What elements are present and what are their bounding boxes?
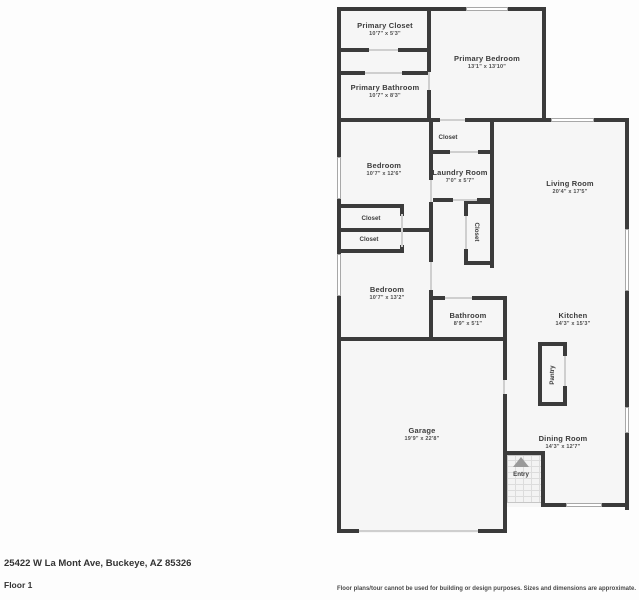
wall-garage-bottom-left [337,529,359,533]
wall-pantry-right-b [563,386,567,406]
wall-pantry-left [538,342,542,406]
wall-primary-closet-bottom-l [341,48,369,52]
label-entry: Entry [499,471,543,478]
wall-garage-top [337,337,507,341]
wall-left-garage [337,341,341,533]
door-pantry [564,356,566,386]
garage-car-door [359,530,478,532]
label-closet-top: Closet [426,134,470,141]
window-primary-bedroom-top [466,7,508,11]
wall-laundry-top-l [433,150,450,154]
wall-primary-divider-a [427,7,431,72]
label-pantry: Pantry [547,355,557,395]
wall-hallcloset-left-a [464,204,468,216]
wall-right-a [625,118,629,230]
door-suite-entry [440,119,465,121]
window-dining-right [625,407,629,433]
wall-pantry-right-a [563,342,567,356]
wall-laundry-bottom-l [433,198,453,202]
door-laundry-bottom [453,199,477,201]
address-text: 25422 W La Mont Ave, Buckeye, AZ 85326 [4,558,191,569]
door-primary-closet [369,49,398,51]
disclaimer-text: Floor plans/tour cannot be used for buil… [337,586,636,592]
primary-suite-area [337,7,546,122]
window-living-top [551,118,594,122]
wall-entry-top [503,451,545,455]
wall-hallcloset-bottom [464,261,494,265]
label-closet-hall: Closet [472,212,482,252]
label-closet-a: Closet [349,215,393,222]
door-stacked-closets [401,214,403,247]
door-laundry-top [450,151,478,153]
wall-living-top-right [593,118,629,122]
wall-bathroom-right [503,296,507,341]
wall-primary-closet-bottom-r [398,48,430,52]
wall-closets-mid [337,228,433,232]
door-garage-entry [503,380,505,394]
wall-closets-bottom [341,249,404,253]
right-wing-area [495,122,629,507]
wall-living-left [490,122,494,268]
wall-suite-bottom-r [465,118,546,122]
floor-label: Floor 1 [4,580,32,590]
entry-arrow-icon [513,457,529,467]
wall-right-c [625,432,629,510]
floorplan-page: { "colors": { "wall": "#3b3b3b", "room_f… [0,0,639,600]
door-primary-bath [428,72,430,90]
left-wing-area [337,122,507,533]
wall-hall-divider-b [429,202,433,262]
wall-primary-bath-upper-r [402,71,430,75]
wall-right-b [625,290,629,408]
wall-primary-divider-b [427,90,431,118]
wall-closets-top [341,204,404,208]
wall-left-top [337,7,341,122]
window-bedroom2-left [337,254,341,296]
wall-garage-right-a [503,341,507,380]
window-bedroom1-left [337,157,341,199]
wall-dining-bottom-right [601,503,629,507]
wall-bathroom-top-l [429,296,445,300]
window-dining-bottom [566,503,602,507]
wall-dining-left [541,455,545,507]
wall-primary-bedroom-right [542,7,546,118]
window-living-right [625,229,629,291]
wall-left-mid-c [337,295,341,341]
label-closet-b: Closet [347,236,391,243]
wall-suite-bottom-l [337,118,440,122]
door-bedroom2 [430,262,432,290]
door-hall-closet [465,216,467,249]
wall-primary-bath-upper-l [341,71,365,75]
wall-bathroom-top-r [472,296,507,300]
wall-left-mid-a [337,122,341,158]
door-primary-bath-inner [365,72,402,74]
wall-garage-right-b [503,394,507,533]
wall-top [337,7,546,11]
door-bathroom [445,297,472,299]
door-bedroom1 [430,180,432,202]
